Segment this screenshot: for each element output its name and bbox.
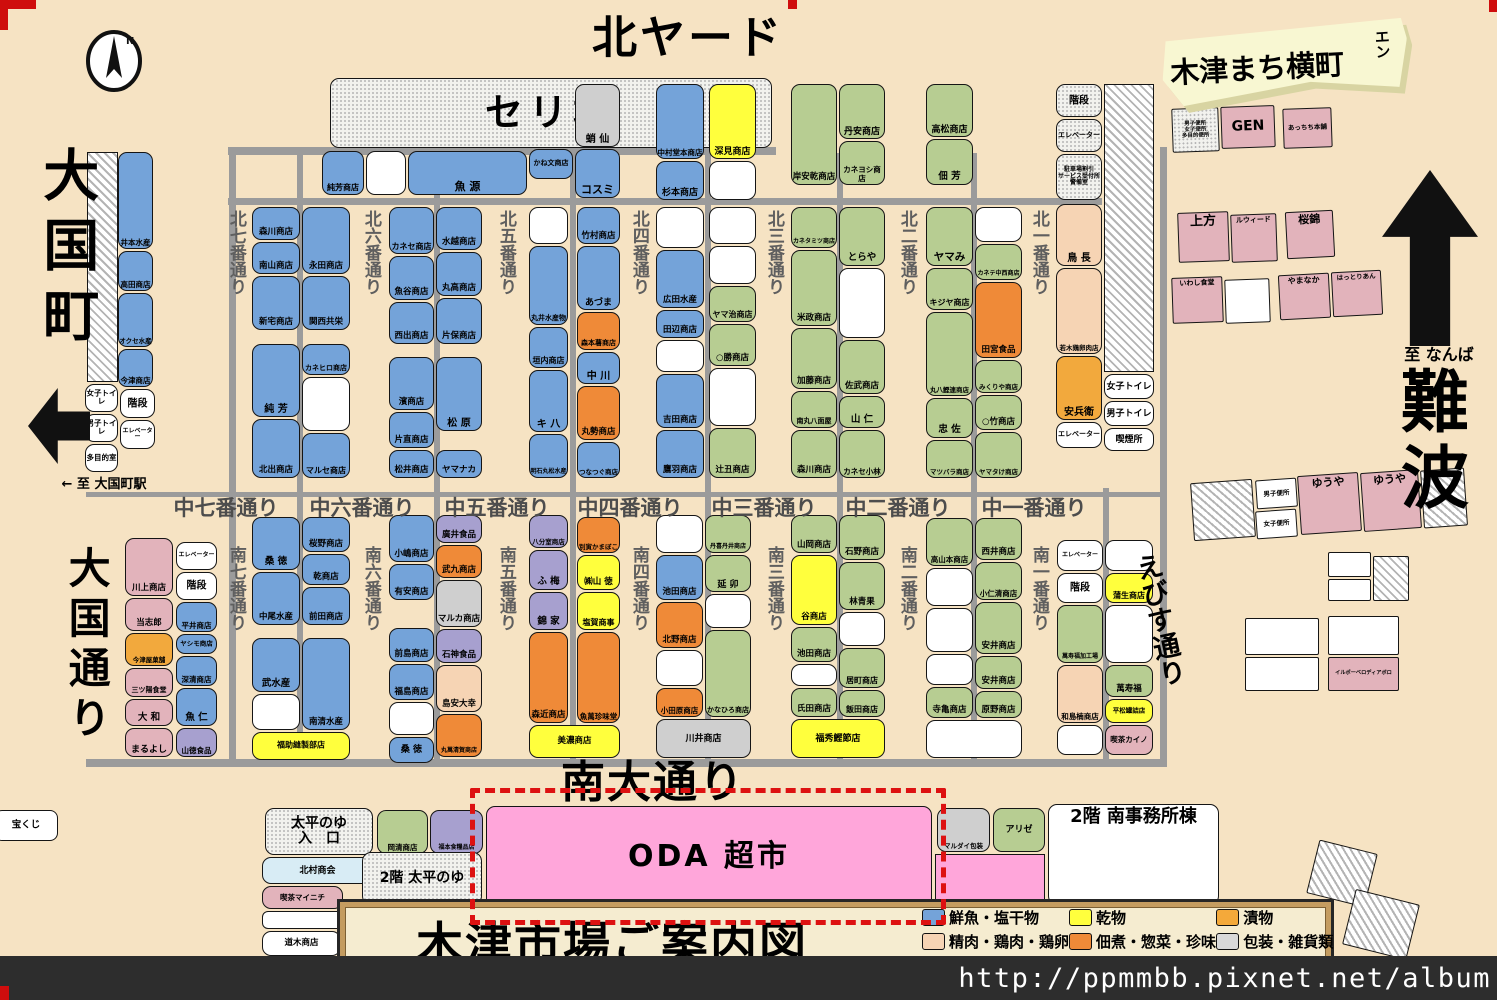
map-block	[791, 664, 837, 686]
legend-label: 佃煮・惣菜・珍味	[1096, 931, 1216, 952]
map-block: キ 八	[529, 370, 568, 432]
map-block	[926, 568, 973, 606]
map-block: 田宮食品	[975, 282, 1022, 358]
map-block-label: 忠 佐	[927, 425, 972, 436]
map-block: 森川商店	[791, 430, 837, 478]
map-block-label: エレベーター	[1058, 552, 1102, 559]
map-block	[389, 702, 434, 735]
kizu-machi-yokocho-banner: 木津まち横町 エン	[1160, 18, 1410, 111]
map-block-label: ヤマ治商店	[710, 311, 755, 320]
map-block-label: 北野商店	[657, 636, 702, 646]
map-block: 道木商店	[262, 931, 341, 956]
map-block	[656, 340, 704, 372]
map-block: つなつぐ商店	[577, 442, 620, 478]
map-block: カネセ商店	[389, 207, 434, 254]
map-block: エレベーター	[176, 542, 217, 570]
map-block-label: 南清水産	[303, 718, 349, 728]
legend-swatch	[1216, 933, 1239, 950]
map-block-label: 女子便所	[1257, 519, 1296, 529]
map-block-label: 新宅商店	[253, 318, 299, 328]
map-block: 平井商店	[176, 602, 217, 632]
map-block-label: 丹喜丹井商店	[706, 544, 750, 551]
map-block: 男子トイレ	[1104, 401, 1154, 426]
map-block-label: 多目的室	[86, 454, 117, 462]
map-block-label: 森川商店	[792, 466, 836, 476]
market-map: N 木津まち横町 エン 木津市場ご案内図 鮮魚・塩干物乾物漬物精肉・鶏肉・鶏卵佃…	[0, 0, 1497, 1000]
map-block-label: ふ 梅	[530, 577, 567, 588]
map-block-label: 広田水産	[657, 296, 703, 306]
map-block-label: ヤマタけ商店	[976, 469, 1021, 476]
map-block: 水越商店	[436, 207, 482, 250]
map-block	[656, 515, 703, 553]
map-block: 延 卯	[705, 555, 751, 592]
map-block-label: 小仁清商店	[976, 590, 1021, 598]
street-naka3: 中三番通り	[700, 497, 828, 519]
map-block: 魚 仁	[176, 688, 217, 726]
map-block: 桜野商店	[302, 517, 350, 552]
street-minami1: 南一番通り	[1029, 546, 1047, 691]
map-block-label: 魚谷商店	[390, 288, 433, 298]
map-block: コスミ	[575, 149, 620, 198]
street-naka1: 中一番通り	[970, 497, 1098, 519]
map-block-label: 岸安乾商店	[792, 173, 836, 183]
map-block: カネタミツ商店	[791, 207, 837, 248]
map-block-label: イルポーベロディアボロ	[1329, 671, 1398, 677]
map-block-label: 純 芳	[253, 404, 299, 415]
map-block: 今津屋菓舗	[125, 633, 173, 666]
map-block-label: 中村堂本商店	[657, 149, 703, 157]
map-block-label: 魚 源	[409, 181, 526, 193]
map-block-label: ヤマナカ	[437, 466, 481, 476]
map-block: 魚谷商店	[389, 256, 434, 300]
map-block: イルポーベロディアボロ	[1328, 657, 1399, 691]
map-block-label: ㈱山 徳	[578, 578, 619, 588]
map-block-label: 中 川	[578, 371, 619, 382]
red-corner-mark	[1489, 0, 1497, 12]
map-block-label: エレベーター	[177, 553, 216, 560]
map-block: 和島楠商店	[1057, 665, 1103, 723]
map-block-label: 松 原	[437, 418, 481, 429]
street-kita6: 北六番通り	[361, 210, 379, 355]
map-block-label: アリゼ	[994, 825, 1044, 835]
map-block: 高田商店	[118, 251, 153, 291]
map-block: 安兵衛	[1056, 356, 1102, 420]
map-block	[1224, 278, 1271, 324]
map-block-label: 鳥 長	[1057, 253, 1101, 264]
map-block-label: 小嶋商店	[390, 550, 433, 560]
map-block-label: 別寅かまぼこ	[578, 544, 619, 551]
map-block: 階段	[120, 389, 155, 418]
map-block-label: 佃 芳	[927, 172, 972, 183]
map-block: マルカ商店	[436, 580, 482, 627]
map-block: 女子トイレ	[1104, 374, 1154, 399]
map-block-label: オクセ水産	[119, 338, 152, 345]
map-block-label: カネヨシ商店	[840, 166, 884, 183]
map-block: 桑 徳	[389, 737, 434, 763]
daikokucho-label: 大国町	[36, 146, 95, 386]
map-block: 純芳商店	[322, 151, 364, 195]
map-block	[709, 246, 756, 284]
map-block-label: みくりや商店	[976, 384, 1021, 391]
map-block-label: 永田商店	[303, 262, 349, 272]
map-block: 萬寿福加工場	[1057, 605, 1103, 663]
map-block	[1373, 556, 1409, 601]
map-block: 桜錦	[1285, 210, 1335, 259]
map-block-label: 谷商店	[792, 613, 836, 623]
map-block-label: 松井商店	[390, 466, 433, 476]
map-block: 中尾水産	[252, 572, 300, 625]
legend-item: 包装・雑貨類	[1216, 929, 1334, 953]
red-corner-mark	[788, 0, 797, 9]
street-minami7: 南七番通り	[226, 546, 244, 691]
map-block: 喫茶マイニチ	[262, 886, 343, 909]
svg-text:N: N	[126, 36, 134, 47]
map-block-label: 三ツ陽食堂	[126, 687, 172, 695]
map-block: 鳥 長	[1056, 204, 1102, 266]
map-block	[926, 720, 1022, 758]
map-block: 今津商店	[118, 349, 153, 387]
map-block: 岸安乾商店	[791, 84, 837, 185]
map-block: 北野商店	[656, 602, 703, 648]
map-block: 女子便所	[1255, 509, 1298, 540]
map-block: 小嶋商店	[389, 515, 434, 562]
map-block: 蛸 仙	[575, 84, 620, 147]
map-block-label: 福助縫製部店	[253, 742, 349, 751]
legend-swatch	[1069, 933, 1092, 950]
map-block-label: カネセ商店	[390, 243, 433, 252]
map-block: 忠 佐	[926, 398, 973, 438]
map-block-label: 平井商店	[177, 622, 216, 630]
map-block-label: 丸勢商店	[578, 428, 619, 438]
map-block: 氏田商店	[791, 688, 837, 717]
map-block-label: 平松罐詰店	[1106, 707, 1152, 714]
map-block: 高山本商店	[926, 518, 973, 566]
kita-yard-label: 北ヤード	[563, 14, 813, 61]
map-block-label: 森本薯商店	[578, 340, 619, 348]
map-block: 塩賀商事	[577, 592, 620, 630]
daikoku-dori-label: 大国通り	[64, 546, 108, 776]
map-block: 福助縫製部店	[252, 732, 350, 760]
map-block: 階段	[1056, 84, 1102, 117]
map-block: 関西共栄	[302, 276, 350, 330]
map-block-label: 女子トイレ	[1105, 381, 1153, 391]
map-block-label: ○勝商店	[710, 354, 755, 364]
map-block-label: 田辺商店	[657, 326, 703, 336]
map-block-label: 水越商店	[437, 238, 481, 248]
map-block: 南山商店	[252, 242, 300, 274]
map-block: 米政商店	[791, 250, 837, 326]
map-block-label: 福島商店	[390, 688, 433, 698]
map-block-label: 池田商店	[657, 588, 702, 598]
map-block-label: 高松商店	[927, 125, 972, 135]
map-block-label: 池田商店	[792, 650, 836, 660]
street-minami6: 南六番通り	[361, 546, 379, 691]
map-block-label: 井本水産	[119, 239, 152, 247]
map-block: 北村商会	[262, 857, 373, 884]
map-block-label: 南山商店	[253, 262, 299, 272]
map-block-label: 安井商店	[976, 677, 1021, 687]
namba-label: 難波	[1392, 366, 1463, 536]
map-block	[839, 268, 885, 338]
map-block: 田辺商店	[656, 310, 704, 338]
map-block-label: 武水産	[253, 679, 299, 690]
map-block-label: 濱商店	[390, 398, 433, 408]
map-block: 丸八鰹連商店	[926, 312, 973, 396]
map-block-label: 延 卯	[706, 580, 750, 590]
map-block-label: 男子便所 女子便所 多目的便所	[1173, 120, 1219, 140]
map-block: 永田商店	[302, 207, 350, 274]
street-minami3: 南三番通り	[764, 546, 782, 691]
map-block	[975, 207, 1022, 242]
map-block: 中 川	[577, 352, 620, 384]
map-block-label: 氏田商店	[792, 705, 836, 715]
map-block: 2階 南事務所棟	[1048, 804, 1219, 905]
map-block: 新宅商店	[252, 276, 300, 330]
street-kita2: 北二番通り	[897, 210, 915, 355]
map-block: 濱商店	[389, 357, 434, 410]
map-block: 丸井水産物	[529, 246, 568, 325]
map-block-label: あづま	[578, 298, 619, 308]
map-block: 武水産	[252, 638, 300, 692]
map-block-label: つなつぐ商店	[578, 469, 619, 476]
map-block: 片保商店	[436, 298, 482, 344]
map-block: 丹喜丹井商店	[705, 515, 751, 553]
map-block-label: カネヒロ商店	[303, 365, 349, 373]
map-block: 前田商店	[302, 587, 350, 625]
map-block: ヤシモ商店	[176, 634, 217, 654]
map-block: ○勝商店	[709, 324, 756, 366]
map-block	[709, 161, 756, 200]
map-block: 明石丸松水産	[529, 434, 568, 478]
map-block-label: ヤシモ商店	[177, 640, 216, 647]
map-block: かね文商店	[529, 149, 573, 179]
map-block: 丸高商店	[436, 252, 482, 296]
map-block: 丸勢商店	[577, 386, 620, 440]
map-block-label: エレベーター	[121, 428, 154, 441]
map-block	[1104, 84, 1154, 372]
map-block-label: 丹安商店	[840, 127, 884, 137]
compass-icon: N	[84, 30, 144, 92]
map-block-label: ○竹商店	[976, 418, 1021, 428]
map-block-label: 北村商会	[263, 865, 372, 875]
map-block: マルセ商店	[302, 433, 350, 478]
map-block-label: まるよし	[126, 745, 172, 755]
map-block	[1057, 725, 1103, 755]
map-block: 林青果	[839, 562, 885, 610]
map-block-label: 今津屋菓舗	[126, 657, 172, 664]
map-block-label: 丸高商店	[437, 284, 481, 294]
map-block: 有安商店	[389, 564, 434, 600]
map-block-label: ヤマみ	[927, 252, 972, 264]
map-block-label: 高山本商店	[927, 556, 972, 564]
map-block: 純 芳	[252, 344, 300, 417]
map-block: 石野商店	[839, 515, 885, 560]
map-block-label: 乾商店	[303, 573, 349, 583]
map-block	[302, 377, 350, 431]
map-block	[709, 368, 756, 426]
map-block: 魚萬珍味堂	[577, 632, 620, 723]
map-block-label: 錦 家	[530, 617, 567, 628]
map-block	[1328, 579, 1371, 601]
map-block	[839, 612, 885, 646]
map-block-label: 大 和	[126, 713, 172, 724]
map-block: 北出商店	[252, 419, 300, 478]
map-block: 喫煙所	[1104, 428, 1154, 451]
map-block: 深清商店	[176, 656, 217, 686]
map-block: 階段	[1057, 573, 1103, 603]
map-block-label: 島安大幸	[437, 700, 481, 710]
map-block	[366, 151, 406, 195]
map-block-label: 西出商店	[390, 332, 433, 342]
map-block: 高松商店	[926, 84, 973, 137]
map-block-label: 上方	[1178, 214, 1227, 230]
map-block-label: 純芳商店	[323, 184, 363, 193]
map-block-label: 林青果	[840, 598, 884, 608]
map-block: 池田商店	[656, 555, 703, 600]
map-block: 萬寿福	[1105, 665, 1153, 697]
map-block: みくりや商店	[975, 360, 1022, 393]
map-block-label: 和島楠商店	[1058, 713, 1102, 721]
map-block	[926, 608, 973, 652]
map-block-label: 居町商店	[840, 677, 884, 686]
map-block: 竹村商店	[577, 207, 620, 244]
map-block-label: 当志郎	[126, 619, 172, 629]
map-block: キジヤ商店	[926, 268, 973, 310]
map-block-label: あっちち本舗	[1284, 124, 1331, 133]
legend-swatch	[1069, 909, 1092, 926]
map-block-label: 2階 太平のゆ	[363, 871, 481, 887]
map-block	[709, 207, 756, 244]
map-block: 錦 家	[529, 592, 568, 630]
map-block-label: 北出商店	[253, 466, 299, 476]
map-block-label: カネタミツ商店	[792, 239, 836, 246]
map-block-label: 宝くじ	[0, 820, 57, 831]
map-block: 美濃商店	[529, 725, 620, 758]
map-block-label: 安井商店	[976, 642, 1021, 652]
street-minami5: 南五番通り	[496, 546, 514, 691]
map-block: あっちち本舗	[1282, 107, 1332, 149]
map-block: 大 和	[125, 699, 173, 726]
street-naka5: 中五番通り	[433, 497, 561, 519]
map-block-label: 加藤商店	[792, 377, 836, 387]
map-block: ヤマみ	[926, 207, 973, 266]
map-block: 駐車場割引 サービス受付所 警備室	[1056, 154, 1102, 200]
map-block	[926, 654, 973, 685]
map-block-label: エレベーター	[1057, 431, 1101, 439]
map-block-label: 福秀鰹節店	[792, 733, 884, 743]
map-block: エレベーター	[1057, 540, 1103, 571]
red-corner-mark	[0, 986, 9, 1000]
map-block: 佃 芳	[926, 139, 973, 185]
map-block: 宝くじ	[0, 810, 58, 841]
map-block: 西井商店	[975, 518, 1022, 560]
map-block: 太平のゆ 入 口	[265, 808, 373, 855]
map-block: 垣内商店	[529, 327, 568, 368]
to-daikokucho-station-label: ← 至 大国町駅	[24, 478, 184, 492]
street-naka6: 中六番通り	[298, 497, 426, 519]
map-block: 辻丑商店	[709, 428, 756, 478]
map-block: 居町商店	[839, 648, 885, 688]
map-block: はっとりあん	[1331, 270, 1383, 318]
map-block-label: 深清商店	[177, 676, 216, 684]
map-block: 平松罐詰店	[1105, 699, 1153, 723]
map-block-label: 塩賀商事	[578, 619, 619, 628]
map-block: 島安大幸	[436, 665, 482, 712]
map-block-label: 岡清商店	[378, 844, 427, 852]
map-block: 原野商店	[975, 691, 1022, 718]
map-block: 川上商店	[125, 538, 173, 596]
map-block-label: かなひろ商店	[706, 707, 750, 715]
map-block-label: 駐車場割引 サービス受付所 警備室	[1057, 167, 1101, 187]
map-block	[705, 594, 751, 628]
map-block: 上方	[1177, 211, 1230, 263]
map-block: 丹安商店	[839, 84, 885, 139]
map-block: 乾商店	[302, 554, 350, 585]
street-minami4: 南四番通り	[629, 546, 647, 691]
map-block-label: 階段	[121, 398, 154, 409]
map-block-label: 中尾水産	[253, 613, 299, 623]
map-block: 森川商店	[252, 207, 300, 240]
map-block: ヤマナカ	[436, 450, 482, 478]
map-block: 片直商店	[389, 412, 434, 448]
map-block-label: 垣内商店	[530, 357, 567, 366]
legend-item: 佃煮・惣菜・珍味	[1069, 929, 1216, 953]
map-block: 前島商店	[389, 628, 434, 662]
map-block-label: ゆうや	[1298, 475, 1358, 491]
legend-label: 包装・雑貨類	[1243, 931, 1333, 952]
map-block: あづま	[577, 246, 620, 310]
map-block-label: 佐武商店	[840, 382, 884, 392]
watermark-url: http://ppmmbb.pixnet.net/album	[958, 963, 1497, 994]
map-block-label: 石野商店	[840, 548, 884, 558]
legend-swatch	[1216, 909, 1239, 926]
map-block-label: 階段	[1057, 95, 1101, 106]
street-minami2: 南二番通り	[897, 546, 915, 691]
map-block-label: 山 仁	[840, 415, 884, 426]
map-block: カネヨシ商店	[839, 141, 885, 185]
map-block: 山岡商店	[791, 515, 837, 553]
map-block-label: とらや	[840, 253, 884, 264]
map-block-label: 喫茶カイノ	[1106, 736, 1152, 744]
map-block: 南清水産	[302, 638, 350, 730]
map-block: 川井商店	[656, 719, 751, 758]
map-block-label: 飯田商店	[840, 706, 884, 715]
map-block-label: エレベーター	[1057, 132, 1101, 140]
map-block: オクセ水産	[118, 293, 153, 347]
watermark-band: http://ppmmbb.pixnet.net/album	[0, 956, 1497, 1000]
map-block: 小仁清商店	[975, 562, 1022, 600]
map-block: 加藤商店	[791, 328, 837, 389]
map-block: 杉本商店	[656, 161, 704, 200]
map-block-label: 明石丸松水産	[530, 469, 567, 476]
map-block: エレベーター	[120, 420, 155, 449]
map-block-label: 田宮食品	[976, 346, 1021, 356]
map-block: 深見商店	[709, 84, 756, 159]
map-block: 女子トイレ	[85, 384, 118, 412]
map-block: 鷹羽商店	[656, 430, 704, 478]
map-block: 山徳食品	[176, 728, 217, 757]
map-block: カネセ小林	[839, 430, 885, 478]
map-block: 広田水産	[656, 250, 704, 308]
map-block-label: 萬寿福加工場	[1058, 654, 1102, 661]
map-block-label: 萬寿福	[1106, 685, 1152, 695]
map-block-label: 杉本商店	[657, 188, 703, 198]
map-block-label: 蛸 仙	[576, 134, 619, 145]
map-block: 吉田商店	[656, 374, 704, 428]
map-block-label: やまなか	[1279, 276, 1328, 288]
map-block: 井本水産	[118, 152, 153, 249]
map-block-label: GEN	[1222, 118, 1275, 135]
